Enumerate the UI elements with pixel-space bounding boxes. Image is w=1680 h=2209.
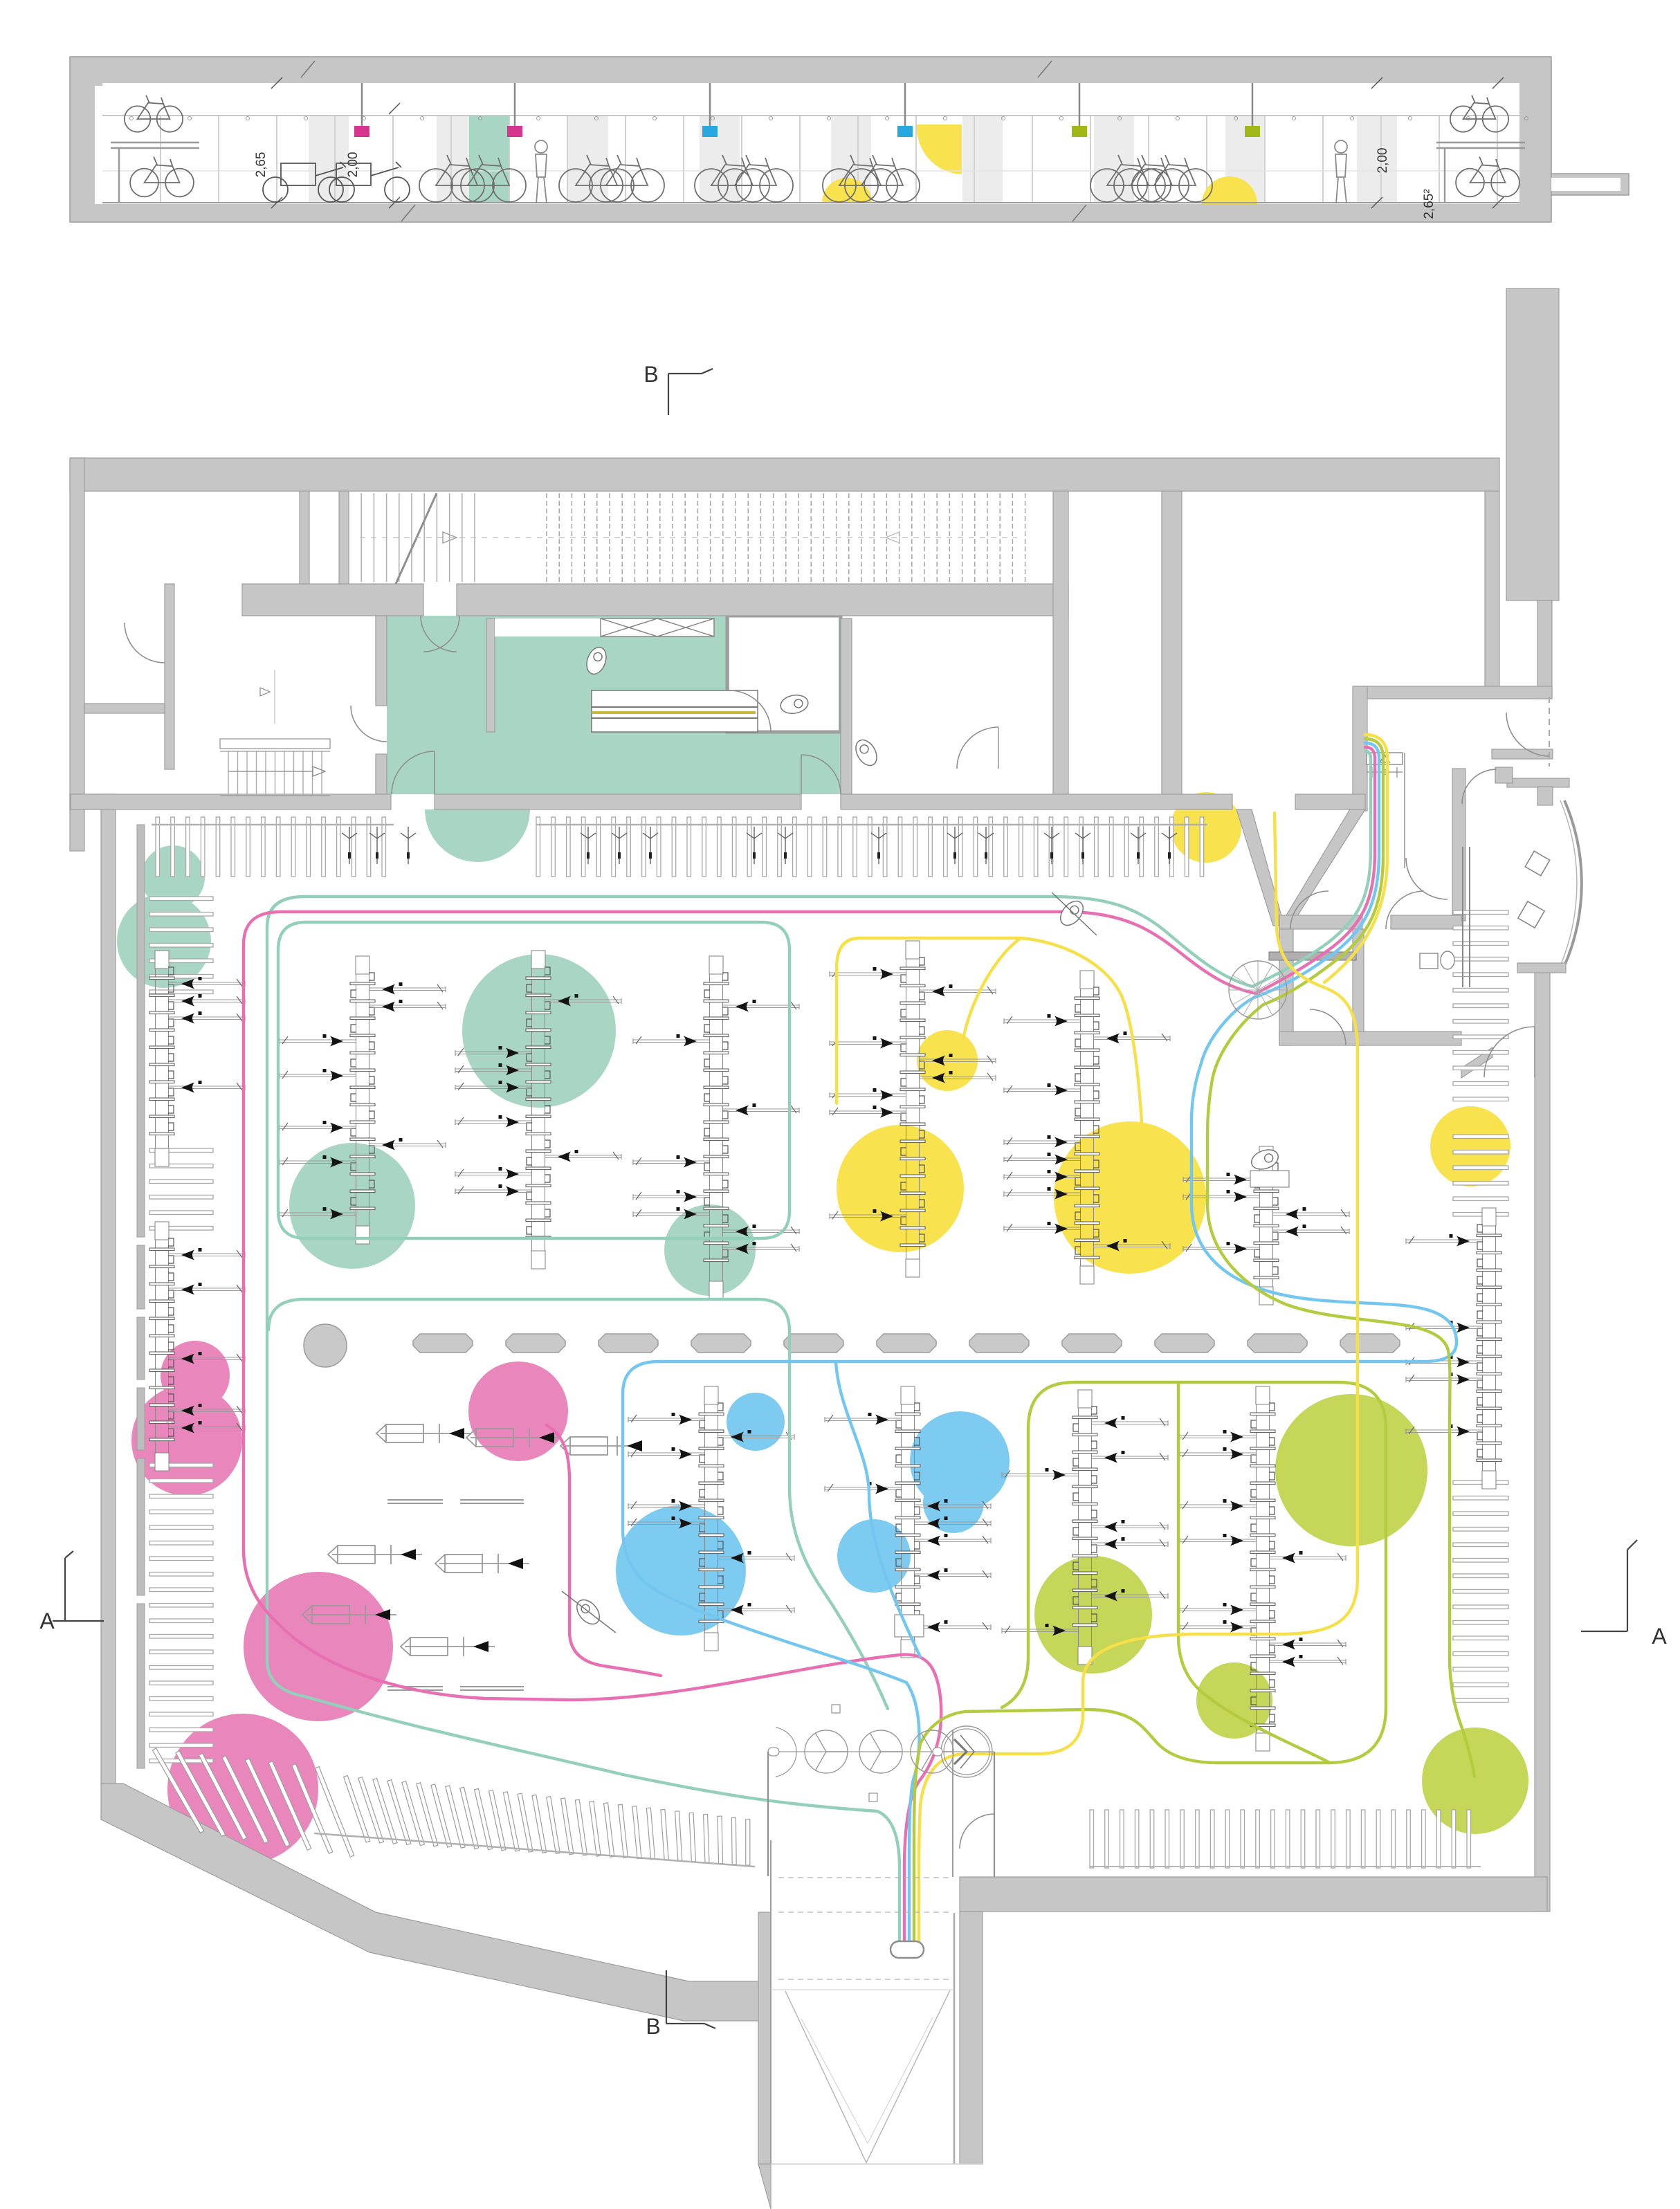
svg-text:A: A (39, 1608, 55, 1633)
svg-text:B: B (643, 362, 658, 387)
svg-text:B: B (646, 2014, 660, 2039)
svg-text:2,00: 2,00 (346, 152, 360, 178)
svg-text:A: A (1652, 1624, 1667, 1649)
svg-text:2,65²: 2,65² (1422, 189, 1436, 219)
svg-text:2,65: 2,65 (254, 152, 268, 178)
svg-text:2,00: 2,00 (1376, 148, 1390, 174)
